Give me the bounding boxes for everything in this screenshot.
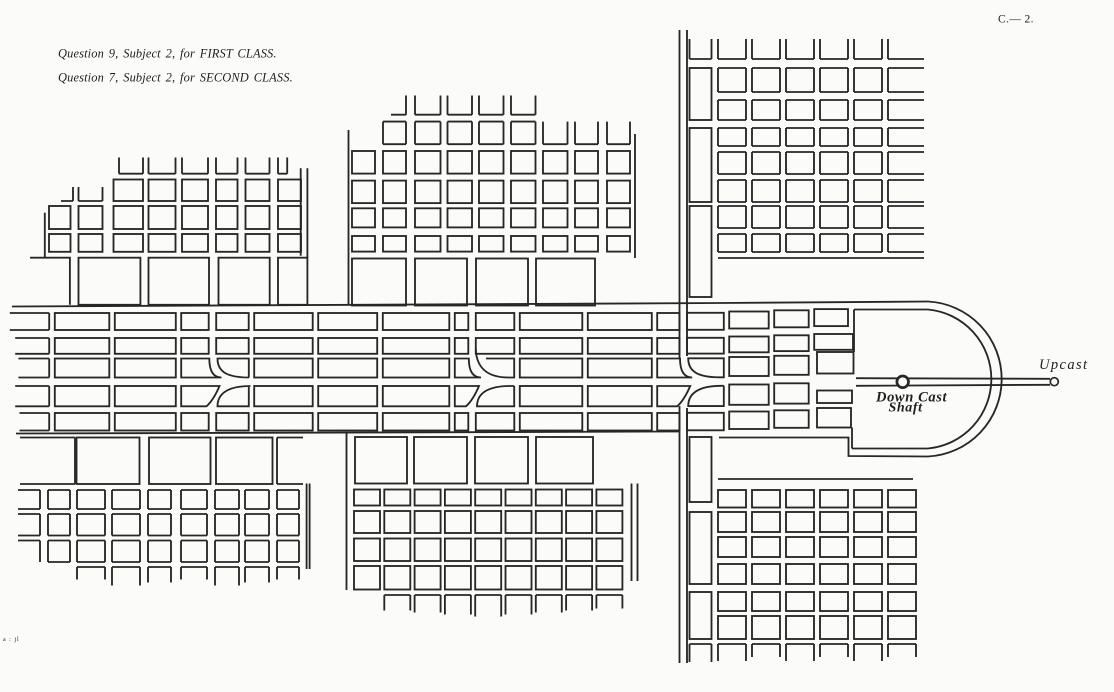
svg-text:C.— 2.: C.— 2. xyxy=(998,14,1034,26)
svg-text:Upcast: Upcast xyxy=(1039,357,1088,373)
svg-text:. a : jl: . a : jl xyxy=(0,637,20,643)
svg-text:Question 9, Subject 2, for FIR: Question 9, Subject 2, for FIRST CLASS. xyxy=(58,47,277,61)
svg-text:Shaft: Shaft xyxy=(889,401,924,416)
svg-text:Question 7, Subject 2, for SEC: Question 7, Subject 2, for SECOND CLASS. xyxy=(58,71,293,85)
